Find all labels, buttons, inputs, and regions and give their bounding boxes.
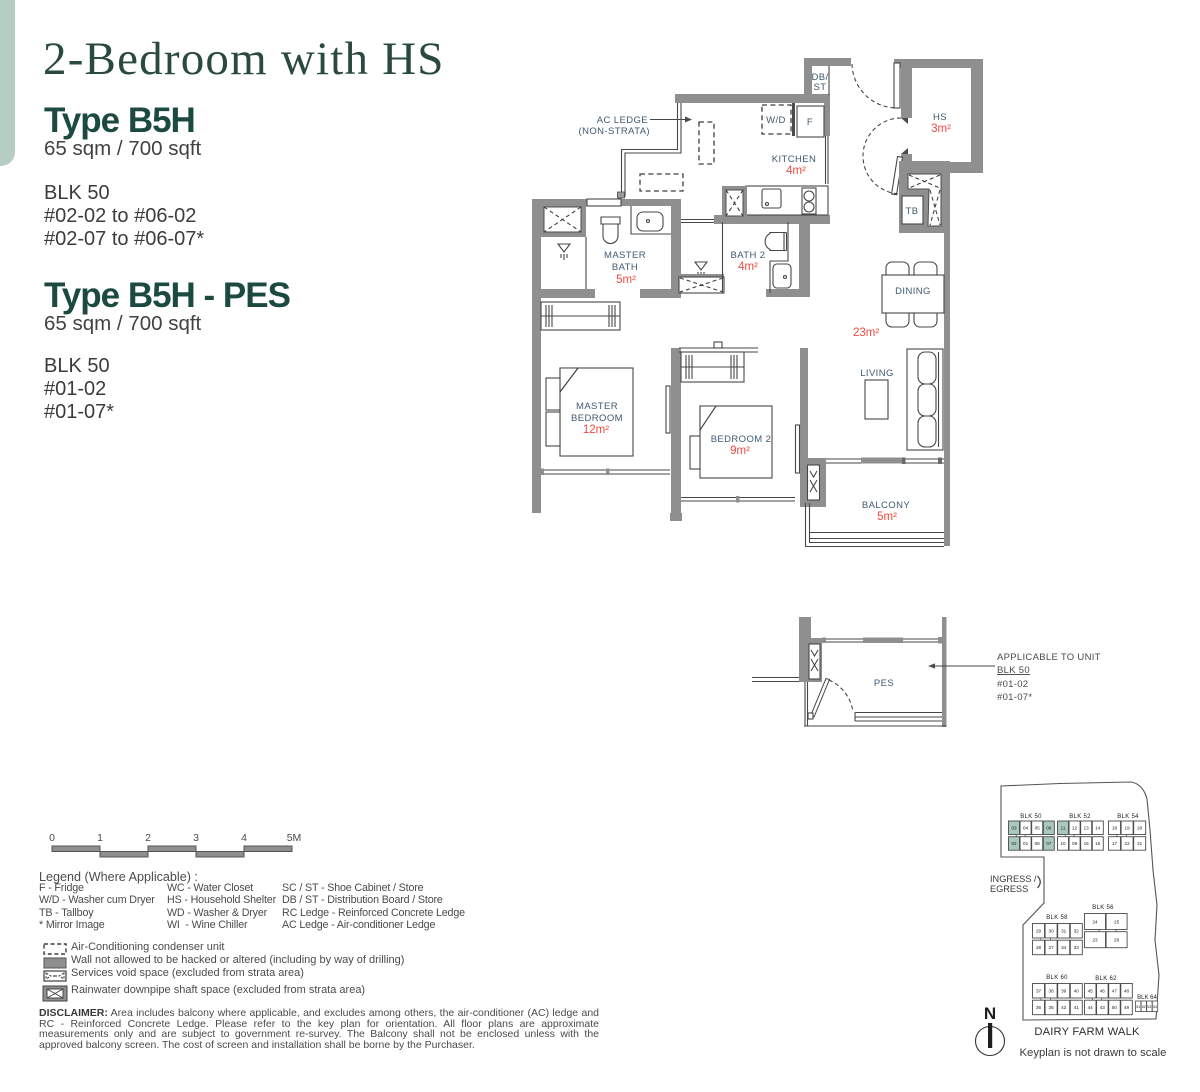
svg-text:BLK 50: BLK 50 (1020, 814, 1042, 820)
svg-text:MASTER: MASTER (604, 250, 646, 261)
svg-text:12: 12 (1072, 826, 1078, 831)
svg-text:03: 03 (1011, 826, 1017, 831)
svg-text:15: 15 (1095, 841, 1101, 846)
svg-text:33: 33 (1074, 945, 1080, 950)
svg-text:41: 41 (1074, 1005, 1080, 1010)
svg-text:01: 01 (1023, 841, 1029, 846)
svg-text:46: 46 (1100, 989, 1106, 994)
svg-text:BLK 62: BLK 62 (1095, 976, 1117, 982)
svg-text:09: 09 (1072, 841, 1078, 846)
svg-text:3: 3 (193, 832, 199, 844)
svg-text:44: 44 (1088, 1005, 1094, 1010)
svg-text:17: 17 (1112, 841, 1118, 846)
svg-text:36: 36 (1036, 1005, 1042, 1010)
svg-text:4m²: 4m² (786, 165, 806, 177)
svg-text:53: 53 (1147, 1005, 1151, 1009)
svg-text:43: 43 (1100, 1005, 1106, 1010)
svg-text:16: 16 (1084, 841, 1090, 846)
svg-text:45: 45 (1088, 989, 1094, 994)
svg-text:28: 28 (1036, 945, 1042, 950)
svg-text:N: N (984, 1004, 996, 1023)
svg-text:12m²: 12m² (583, 424, 609, 436)
svg-text:47: 47 (1112, 989, 1118, 994)
svg-text:BLK 58: BLK 58 (1046, 915, 1068, 921)
svg-text:27: 27 (1049, 945, 1055, 950)
svg-text:4: 4 (241, 832, 247, 844)
svg-text:20: 20 (1137, 826, 1143, 831)
svg-text:51: 51 (1136, 1005, 1140, 1009)
svg-text:5M: 5M (287, 832, 302, 844)
svg-text:35: 35 (1049, 1005, 1055, 1010)
svg-text:48: 48 (1124, 989, 1130, 994)
svg-text:F: F (807, 117, 813, 128)
svg-text:BALCONY: BALCONY (862, 500, 910, 511)
svg-text:13: 13 (1084, 826, 1090, 831)
svg-text:37: 37 (1036, 989, 1042, 994)
svg-text:EGRESS: EGRESS (990, 884, 1028, 894)
svg-text:21: 21 (1137, 841, 1143, 846)
svg-text:40: 40 (1074, 989, 1080, 994)
svg-text:PES: PES (874, 678, 894, 689)
svg-text:BLK 50: BLK 50 (997, 665, 1030, 676)
svg-text:INGRESS /: INGRESS / (990, 874, 1037, 884)
svg-text:5m²: 5m² (616, 274, 636, 286)
svg-text:TB: TB (906, 206, 919, 217)
svg-text:39: 39 (1061, 989, 1067, 994)
svg-text:ST: ST (814, 82, 827, 93)
svg-text:32: 32 (1074, 929, 1080, 934)
svg-text:23: 23 (1092, 938, 1098, 943)
svg-text:07: 07 (1046, 841, 1052, 846)
svg-text:18: 18 (1112, 826, 1118, 831)
svg-text:BLK 64: BLK 64 (1137, 995, 1157, 1001)
svg-text:BLK 52: BLK 52 (1069, 814, 1091, 820)
svg-text:BLK 56: BLK 56 (1092, 905, 1114, 911)
svg-text:BLK 54: BLK 54 (1117, 814, 1139, 820)
svg-text:3m²: 3m² (931, 123, 951, 135)
svg-text:Keyplan is not drawn to scale: Keyplan is not drawn to scale (1020, 1047, 1167, 1059)
svg-text:30: 30 (1049, 929, 1055, 934)
svg-text:DINING: DINING (895, 286, 931, 297)
svg-text:#01-02: #01-02 (997, 679, 1028, 690)
svg-text:52: 52 (1142, 1005, 1146, 1009)
svg-text:BATH: BATH (612, 262, 638, 273)
svg-text:29: 29 (1036, 929, 1042, 934)
svg-text:(NON-STRATA): (NON-STRATA) (579, 126, 650, 137)
svg-text:38: 38 (1049, 989, 1055, 994)
svg-text:APPLICABLE TO UNIT: APPLICABLE TO UNIT (997, 652, 1101, 663)
svg-text:06: 06 (1046, 826, 1052, 831)
svg-text:1: 1 (97, 832, 103, 844)
svg-text:BLK 60: BLK 60 (1046, 975, 1068, 981)
svg-text:BATH 2: BATH 2 (731, 250, 766, 261)
svg-text:02: 02 (1011, 841, 1017, 846)
svg-text:05: 05 (1035, 826, 1041, 831)
svg-text:LIVING: LIVING (860, 368, 894, 379)
svg-text:49: 49 (1124, 1005, 1130, 1010)
svg-text:W/D: W/D (766, 115, 786, 126)
svg-text:2: 2 (145, 832, 151, 844)
svg-text:AC LEDGE: AC LEDGE (597, 115, 648, 126)
svg-text:DAIRY FARM WALK: DAIRY FARM WALK (1034, 1026, 1140, 1038)
svg-text:23m²: 23m² (853, 327, 879, 339)
svg-text:31: 31 (1061, 929, 1067, 934)
svg-text:10: 10 (1060, 841, 1066, 846)
svg-text:11: 11 (1061, 826, 1066, 831)
svg-text:25: 25 (1114, 919, 1120, 924)
svg-text:26: 26 (1114, 938, 1120, 943)
svg-text:54: 54 (1153, 1005, 1157, 1009)
svg-text:24: 24 (1092, 919, 1098, 924)
svg-text:04: 04 (1023, 826, 1029, 831)
svg-text:14: 14 (1095, 826, 1101, 831)
svg-text:#01-07*: #01-07* (997, 692, 1032, 703)
svg-text:22: 22 (1125, 841, 1131, 846)
svg-text:34: 34 (1061, 945, 1067, 950)
svg-text:4m²: 4m² (738, 261, 758, 273)
svg-text:5m²: 5m² (877, 511, 897, 523)
svg-text:BEDROOM 2: BEDROOM 2 (711, 434, 772, 445)
svg-text:19: 19 (1125, 826, 1131, 831)
svg-text:MASTER: MASTER (576, 401, 618, 412)
svg-text:9m²: 9m² (730, 445, 750, 457)
svg-text:42: 42 (1061, 1005, 1067, 1010)
svg-text:BEDROOM: BEDROOM (571, 413, 623, 424)
svg-text:08: 08 (1035, 841, 1041, 846)
svg-text:0: 0 (49, 832, 55, 844)
svg-text:50: 50 (1112, 1005, 1118, 1010)
svg-text:HS: HS (933, 112, 947, 123)
svg-text:KITCHEN: KITCHEN (772, 154, 817, 165)
